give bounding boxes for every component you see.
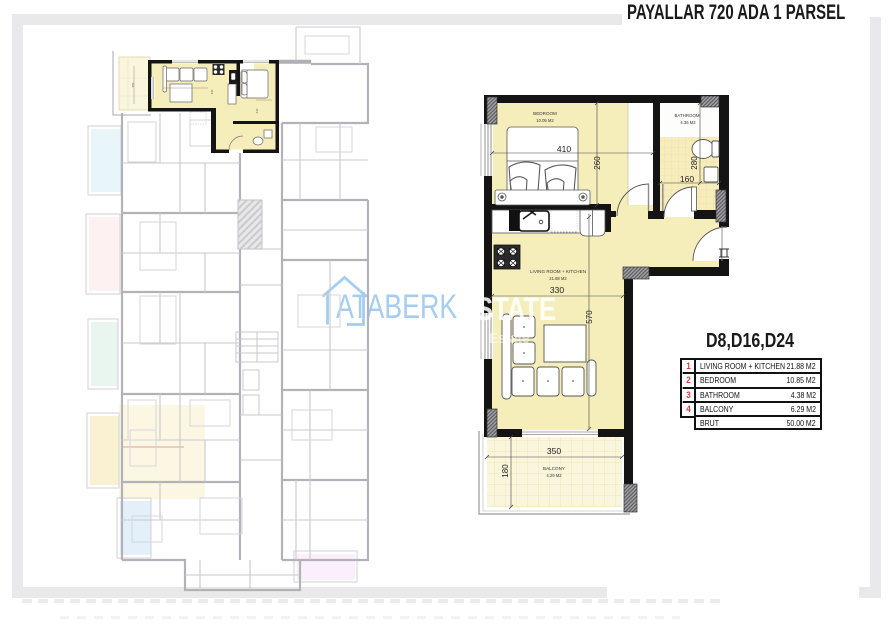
svg-text:21.88 M2: 21.88 M2 [549, 276, 567, 281]
svg-text:10.05 M2: 10.05 M2 [536, 118, 554, 123]
svg-text:350: 350 [547, 446, 561, 456]
svg-text:330: 330 [210, 89, 214, 94]
svg-text:BALCONY: BALCONY [543, 466, 565, 471]
svg-text:280: 280 [690, 156, 699, 170]
svg-text:570: 570 [585, 310, 594, 324]
svg-text:LIVING ROOM + KITCHEN: LIVING ROOM + KITCHEN [530, 269, 586, 274]
svg-text:350: 350 [131, 82, 135, 87]
svg-text:4.29 M2: 4.29 M2 [546, 473, 562, 478]
svg-text:260: 260 [593, 156, 602, 170]
svg-text:4.36 M2: 4.36 M2 [680, 120, 696, 125]
svg-text:180: 180 [501, 464, 510, 478]
svg-text:410: 410 [557, 144, 571, 154]
svg-text:BEDROOM: BEDROOM [533, 111, 557, 116]
svg-text:160: 160 [680, 174, 694, 184]
svg-text:BATHROOM: BATHROOM [674, 113, 699, 118]
svg-text:410: 410 [255, 108, 259, 113]
